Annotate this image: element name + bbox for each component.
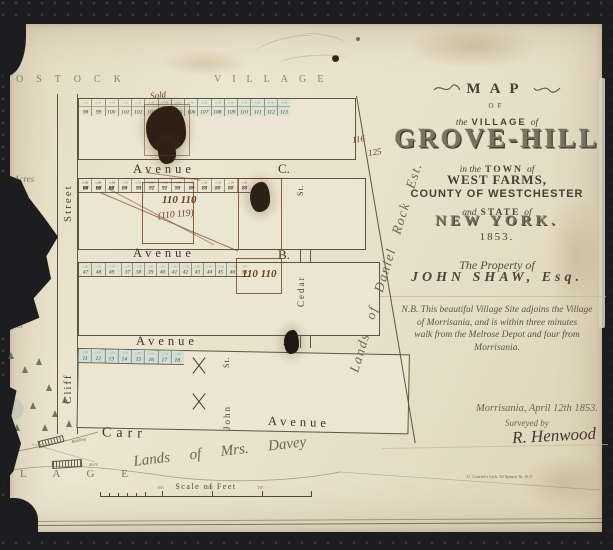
lot: 1.5080 <box>92 179 105 192</box>
lot: 2.50109 <box>225 99 238 116</box>
lot-number: 76 <box>215 186 221 192</box>
pen-outline <box>144 104 190 156</box>
title-map-row: MAP <box>383 80 611 98</box>
crossed-out-lot-mark <box>191 352 208 378</box>
scale-number: 200 <box>207 486 213 491</box>
cedar-street-crossing <box>300 250 311 262</box>
lot-price-mark: 1.00 <box>194 265 200 268</box>
scale-tick <box>162 491 163 496</box>
lot-price-mark: 1.50 <box>135 181 141 184</box>
title-of: OF <box>383 102 611 110</box>
carr-label: Carr <box>102 425 147 442</box>
nb-line-4: Morrisania. <box>390 342 604 355</box>
lot-number: 80 <box>96 186 102 192</box>
cedar-st-abbr: St. <box>296 184 305 196</box>
title-map-word: MAP <box>466 81 527 97</box>
lot-number: 100 <box>107 110 115 116</box>
lot: 1.0038 <box>133 263 145 276</box>
lot: 1.0040 <box>157 263 169 276</box>
lot-price-mark: 2.50 <box>95 101 101 104</box>
handwritten-sold: Sold <box>150 89 167 101</box>
lot-number: 39 <box>148 270 154 276</box>
lot-number: 13 <box>109 356 115 362</box>
scale-tick <box>109 493 110 496</box>
scale-number: 300 <box>257 486 263 491</box>
handwritten-110-110: 110 110 <box>242 268 277 280</box>
lot-price-mark: 1.00 <box>183 265 189 268</box>
lot-number: 38 <box>136 270 142 276</box>
pen-outline <box>238 178 282 250</box>
lot-number: 101 <box>121 110 129 116</box>
lot: 1.0042 <box>180 263 192 276</box>
avenue-a-word: Avenue <box>136 334 198 349</box>
lot: 2.50101 <box>119 99 132 116</box>
lot-number: 11 <box>82 356 87 362</box>
lot-price-mark: 1.00 <box>124 265 130 268</box>
lot-number: 41 <box>171 270 177 276</box>
street-label-west: Street <box>62 184 74 222</box>
lot-price-mark: 2.50 <box>268 101 274 104</box>
lot-price-mark: 1.00 <box>136 265 142 268</box>
lot-price-mark: 1.50 <box>201 181 207 184</box>
tree-icon <box>42 424 48 431</box>
lot: 2.50112 <box>265 99 278 116</box>
scale-tick <box>262 491 263 496</box>
lot: 1.5076 <box>212 179 225 192</box>
lot-price-mark: 2.50 <box>109 101 115 104</box>
scale-of-feet: Scale of Feet 100 200 300 <box>100 482 312 504</box>
title-new-york: NEW YORK. <box>383 213 611 230</box>
lot-price-mark: 1.00 <box>206 265 212 268</box>
scale-tick <box>145 492 146 496</box>
tree-icon <box>52 410 58 417</box>
lot: 1.0044 <box>204 263 216 276</box>
lot: 1.0045 <box>216 263 228 276</box>
lot-number: 16 <box>148 357 154 363</box>
lot-row: 1.50111.50121.50131.50141.50151.50161.50… <box>79 349 184 364</box>
owner-name: JOHN SHAW, Esq. <box>383 270 611 286</box>
lot: 1.0037 <box>122 263 134 276</box>
lot-number: 40 <box>159 270 165 276</box>
lot-number: 69 <box>122 186 128 192</box>
ink-blot <box>284 330 299 354</box>
title-year: 1853. <box>383 231 611 243</box>
lot: 1.5016 <box>145 350 158 363</box>
tree-icon <box>66 420 72 427</box>
lot: 1.5014 <box>118 350 131 363</box>
lot: 2.50108 <box>212 99 225 116</box>
lot-number: 14 <box>122 357 128 363</box>
lot-price-mark: 1.50 <box>95 352 101 355</box>
lot: 1.0043 <box>192 263 204 276</box>
lot-number: 109 <box>227 110 235 116</box>
lot: 2.50111 <box>251 99 264 116</box>
lot-price-mark: 2.50 <box>122 101 128 104</box>
lot-number: 102 <box>134 110 142 116</box>
scale-tick <box>212 491 213 496</box>
lot-price-mark: 1.50 <box>215 181 221 184</box>
lot-price-mark: 1.00 <box>147 265 153 268</box>
lot-number: 42 <box>183 270 189 276</box>
lot-number: 48 <box>96 270 102 276</box>
block-c-b: 1.50971.50961.50951.50941.50931.50921.50… <box>78 178 366 250</box>
block-b-a: 1.00651.00641.00631.00621.00611.00601.00… <box>78 262 380 336</box>
lot-number: 108 <box>213 110 221 116</box>
lot-number: 47 <box>82 270 88 276</box>
lot-number: 18 <box>175 358 181 364</box>
scale-number: 100 <box>157 486 163 491</box>
lot-number: 44 <box>206 270 212 276</box>
lot: 1.0049 <box>106 263 118 276</box>
lot-price-mark: 2.50 <box>82 101 88 104</box>
lot: 1.5013 <box>105 350 118 363</box>
lot-number: 79 <box>82 186 88 192</box>
john-street-label: John <box>222 405 232 430</box>
scale-tick <box>127 493 128 496</box>
lot-price-mark: 1.50 <box>82 181 88 184</box>
handwritten-116: 116 <box>351 133 365 145</box>
scale-bar <box>100 496 312 497</box>
handwritten-110-110: 110 110 <box>162 194 197 206</box>
lot: 2.50107 <box>198 99 211 116</box>
lot-price-mark: 1.00 <box>230 265 236 268</box>
lot: 2.5098 <box>79 99 92 116</box>
lot-number: 77 <box>228 186 234 192</box>
lot-number: 107 <box>200 110 208 116</box>
lot-number: 111 <box>254 110 262 116</box>
lot-price-mark: 1.00 <box>171 265 177 268</box>
lot-price-mark: 1.00 <box>218 265 224 268</box>
nb-line-3: walk from the Melrose Depot and four fro… <box>390 329 604 342</box>
lot-price-mark: 1.50 <box>228 181 234 184</box>
dateline: Morrisania, April 12th 1853. <box>462 403 612 414</box>
lot-price-mark: 1.50 <box>175 353 181 356</box>
nb-line-2: of Morrisania, and is within three minut… <box>390 317 604 330</box>
lot-number: 70 <box>135 186 141 192</box>
lot: 2.50110 <box>238 99 251 116</box>
title-county: COUNTY OF WESTCHESTER <box>383 188 611 200</box>
block-north: 2.50982.50992.501002.501012.501022.50103… <box>78 98 356 160</box>
lot-price-mark: 1.00 <box>82 265 88 268</box>
lot: 1.5011 <box>79 349 92 362</box>
lot-number: 37 <box>124 270 130 276</box>
lot-price-mark: 1.00 <box>159 265 165 268</box>
tree-icon <box>22 366 28 373</box>
lot: 2.5099 <box>92 99 105 116</box>
lot-number: 45 <box>218 270 224 276</box>
scale-tick <box>136 493 137 496</box>
store-label: Store <box>89 462 98 467</box>
lot-number: 99 <box>96 110 102 116</box>
lot-row: 1.00471.00481.0049 <box>79 263 118 276</box>
tree-icon <box>30 402 36 409</box>
lot: 1.5069 <box>119 179 132 192</box>
lot-price-mark: 2.50 <box>215 101 221 104</box>
lot-price-mark: 1.50 <box>122 352 128 355</box>
lot-price-mark: 2.50 <box>228 101 234 104</box>
carr-avenue-word: Avenue <box>268 414 330 431</box>
lot-number: 17 <box>162 357 168 363</box>
scale-tick <box>100 492 101 496</box>
handwritten-125: 125 <box>367 146 382 158</box>
lot-number: 15 <box>135 357 141 363</box>
lot-price-mark: 1.50 <box>161 353 167 356</box>
cedar-street-crossing <box>300 336 311 348</box>
scale-tick <box>311 491 312 496</box>
lot-price-mark: 1.50 <box>109 181 115 184</box>
lot-number: 75 <box>202 186 208 192</box>
lot-price-mark: 1.00 <box>109 265 115 268</box>
cedar-street-label: Cedar <box>296 276 306 308</box>
scale-label: Scale of Feet <box>100 482 312 491</box>
title-grove-hill: GROVE-HILL <box>383 123 611 154</box>
lot: 1.0039 <box>145 263 157 276</box>
lot: 1.5018 <box>171 351 183 364</box>
crease-line <box>378 296 606 297</box>
john-st-abbr: St. <box>222 356 231 368</box>
lot: 2.50113 <box>278 99 290 116</box>
lot: 1.5015 <box>132 350 145 363</box>
lot: 1.5012 <box>92 349 105 362</box>
lot: 1.0048 <box>92 263 105 276</box>
title-west-farms: WEST FARMS, <box>383 172 611 188</box>
avenue-b-word: Avenue <box>133 246 195 261</box>
lot-price-mark: 1.50 <box>95 181 101 184</box>
lot: 1.0041 <box>169 263 181 276</box>
lot-price-mark: 2.50 <box>254 101 260 104</box>
tree-icon <box>62 396 68 403</box>
lot: 1.5077 <box>225 179 238 192</box>
lot-price-mark: 1.50 <box>122 181 128 184</box>
lot: 2.50100 <box>106 99 119 116</box>
top-band-left: OSTOCK <box>16 74 134 85</box>
lot-number: 110 <box>240 110 248 116</box>
bottom-band-partial: L A G E <box>20 468 140 480</box>
lot-price-mark: 1.50 <box>135 352 141 355</box>
map-photo: OSTOCK VILLAGE L A G E Street Cliff 2.50… <box>0 0 613 550</box>
lot-price-mark: 1.50 <box>148 353 154 356</box>
lot-number: 98 <box>82 110 88 116</box>
lot-price-mark: 2.50 <box>201 101 207 104</box>
lot-number: 112 <box>267 110 275 116</box>
lot: 1.5017 <box>158 351 171 364</box>
lot-price-mark: 1.00 <box>95 265 101 268</box>
tree-icon <box>46 384 52 391</box>
lot-number: 49 <box>109 270 115 276</box>
lot: 1.5079 <box>79 179 92 192</box>
crossed-out-lot-mark <box>191 388 208 414</box>
lot-number: 12 <box>95 356 101 362</box>
tree-icon <box>36 358 42 365</box>
lot-price-mark: 1.50 <box>108 352 114 355</box>
lot-price-mark: 2.50 <box>241 101 247 104</box>
scale-tick <box>118 493 119 496</box>
lot-price-mark: 2.50 <box>281 101 287 104</box>
nb-note: N.B. This beautiful Village Site adjoins… <box>390 304 604 354</box>
lithographer-credit: C. Currier's Lith. 33 Spruce St. N.Y. <box>461 474 539 479</box>
lot: 1.0047 <box>79 263 92 276</box>
lot-price-mark: 1.50 <box>82 351 88 354</box>
lot-number: 43 <box>195 270 201 276</box>
top-band-right: VILLAGE <box>214 74 334 85</box>
avenue-c-letter: C. <box>278 161 290 177</box>
tree-icon <box>8 352 14 359</box>
lot: 1.5075 <box>198 179 211 192</box>
lot-number: 46 <box>230 270 236 276</box>
nb-line-1: N.B. This beautiful Village Site adjoins… <box>390 304 604 317</box>
lot-number: 113 <box>280 110 288 116</box>
lot-price-mark: 2.50 <box>135 101 141 104</box>
